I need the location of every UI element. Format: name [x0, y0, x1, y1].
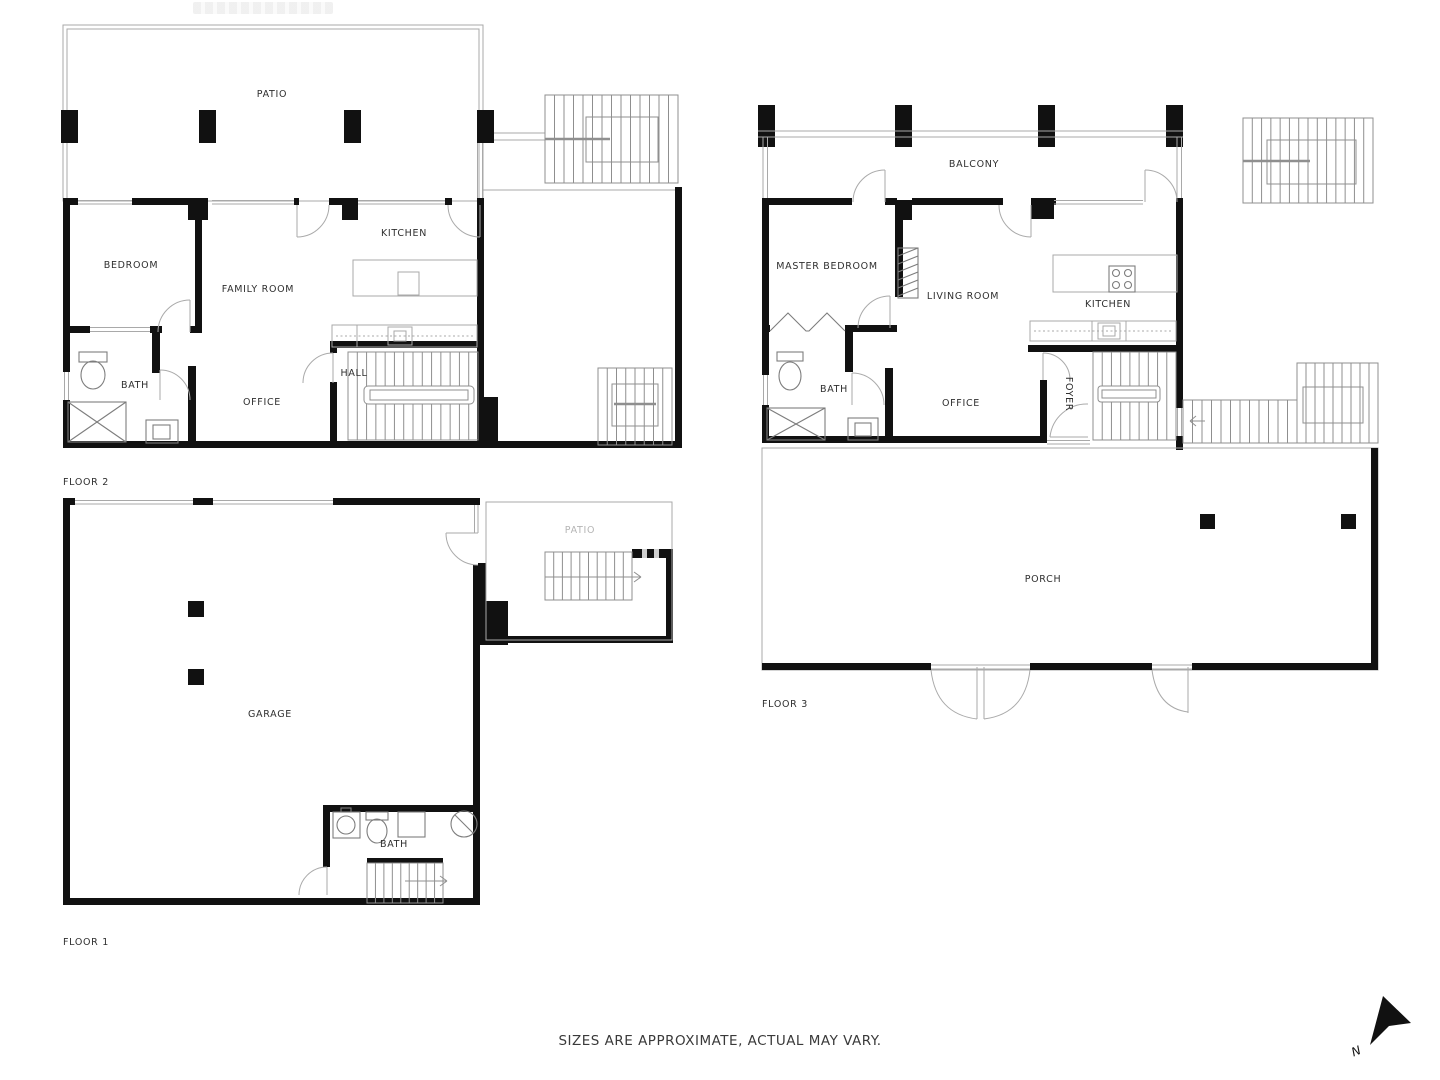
floor3-foyer-stair-rail: [1098, 386, 1160, 402]
floor2-plan: PATIO BEDROOM FAMILY ROOM KITCHEN BATH O…: [61, 25, 682, 488]
floor3-foyer-label: FOYER: [1063, 377, 1074, 411]
floor2-hall-label: HALL: [340, 368, 367, 379]
floor1-patio-outline: [486, 502, 672, 640]
floor2-bath-label: BATH: [121, 380, 149, 391]
compass: N: [1349, 996, 1411, 1059]
floor2-family-room-label: FAMILY ROOM: [222, 284, 294, 295]
floorplan-drawing: PATIO BEDROOM FAMILY ROOM KITCHEN BATH O…: [0, 0, 1440, 1080]
floor3-kitchen-island: [1053, 255, 1177, 292]
floor2-kitchen-label: KITCHEN: [381, 228, 427, 239]
floor3-exterior-stair-switchback: [1297, 363, 1378, 443]
floor3-balcony-label: BALCONY: [949, 159, 999, 170]
floor3-kitchen-label: KITCHEN: [1085, 299, 1131, 310]
floor3-porch-doors: [931, 665, 1192, 719]
floor3-porch-walls: [762, 448, 1378, 670]
floor3-living-room-label: LIVING ROOM: [927, 291, 999, 302]
floor1-title: FLOOR 1: [63, 937, 109, 948]
floor1-garage-columns: [188, 601, 204, 685]
floor1-plan: PATIO GARAGE BATH FLOOR 1: [63, 498, 673, 948]
floor2-hall-stair-rail: [364, 386, 474, 404]
floor2-kitchen-island: [353, 260, 477, 296]
floor3-master-bedroom-label: MASTER BEDROOM: [776, 261, 878, 272]
floor2-office-label: OFFICE: [243, 397, 281, 408]
floor2-walls: [63, 187, 682, 448]
floor3-closet-bifold-doors: [770, 313, 845, 331]
floor2-deck-stair: [598, 368, 672, 445]
floor2-patio-columns: [61, 110, 494, 143]
floor1-bath-stair: [367, 863, 443, 903]
floor3-bath-label: BATH: [820, 384, 848, 395]
disclaimer-text: SIZES ARE APPROXIMATE, ACTUAL MAY VARY.: [0, 1033, 1440, 1049]
floor1-walls: [63, 498, 673, 905]
floor3-porch-outline: [762, 448, 1378, 670]
floor3-office-label: OFFICE: [942, 398, 980, 409]
floor1-patio-stair: [545, 552, 632, 600]
floor1-windows: [75, 501, 478, 534]
floor3-kitchen-counter: [1030, 321, 1176, 341]
floor2-patio-outline: [63, 25, 545, 201]
floorplan-canvas: PATIO BEDROOM FAMILY ROOM KITCHEN BATH O…: [0, 0, 1440, 1080]
floor3-balcony-columns: [758, 105, 1183, 147]
floor2-bath-fixtures: [68, 352, 178, 443]
floor3-plan: BALCONY MASTER BEDROOM LIVING ROOM KITCH…: [758, 105, 1378, 719]
floor2-bedroom-label: BEDROOM: [104, 260, 159, 271]
floor3-bath-fixtures: [767, 352, 878, 440]
floor1-garage-label: GARAGE: [248, 709, 292, 720]
floor2-patio-label: PATIO: [257, 89, 287, 100]
floor1-bath-fixtures: [333, 808, 477, 843]
floor3-porch-label: PORCH: [1025, 574, 1062, 585]
floor2-title: FLOOR 2: [63, 477, 109, 488]
floor1-patio-label: PATIO: [565, 525, 595, 536]
floor1-bath-label: BATH: [380, 839, 408, 850]
floor1-patio-stair-arrow: [545, 572, 641, 582]
floor3-title: FLOOR 3: [762, 699, 808, 710]
